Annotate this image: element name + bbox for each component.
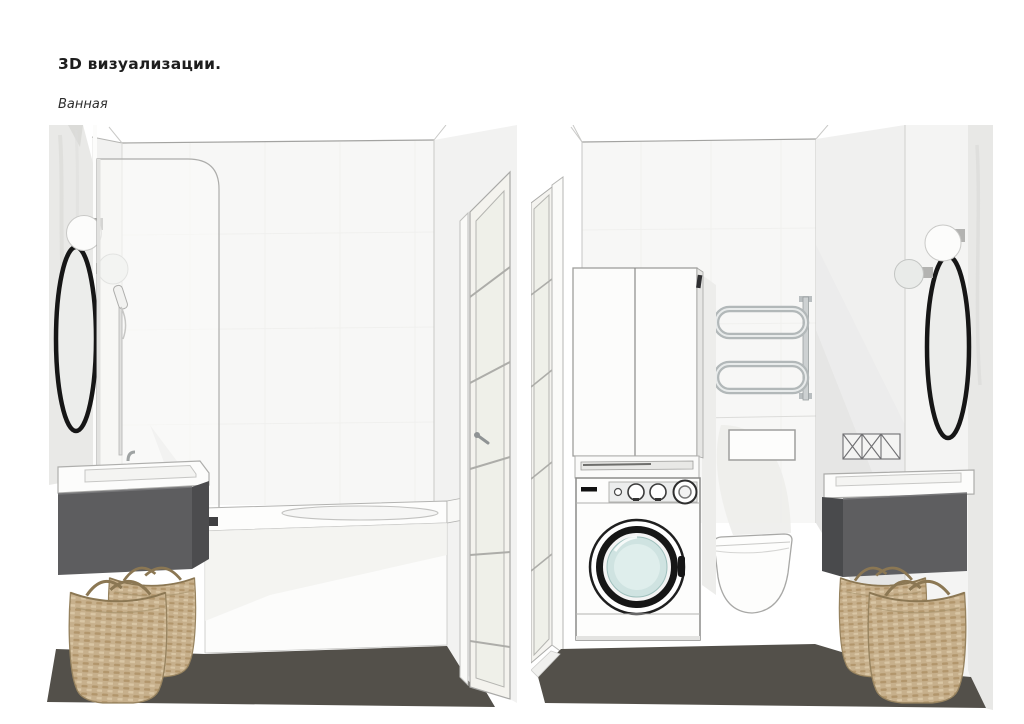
render-laundry-wc-view — [531, 125, 993, 710]
vanity-cabinet — [58, 481, 209, 575]
shower-glass-screen — [97, 159, 219, 510]
wall-hung-toilet — [714, 534, 792, 613]
interior-glass-door — [460, 172, 510, 699]
vent-grille — [843, 434, 900, 459]
vanity-cabinet — [822, 493, 967, 577]
washer-door — [590, 520, 685, 614]
document-page: 3D визуализации. Ванная — [0, 0, 1024, 724]
page-subtitle: Ванная — [58, 97, 108, 112]
flush-plate — [729, 430, 795, 460]
shelf — [575, 456, 699, 478]
oval-mirror — [927, 256, 969, 438]
washing-machine — [576, 478, 700, 640]
page-title: 3D визуализации. — [58, 55, 221, 73]
oval-mirror — [56, 247, 96, 431]
bathtub — [205, 498, 463, 653]
render-bathtub-view — [30, 125, 517, 710]
